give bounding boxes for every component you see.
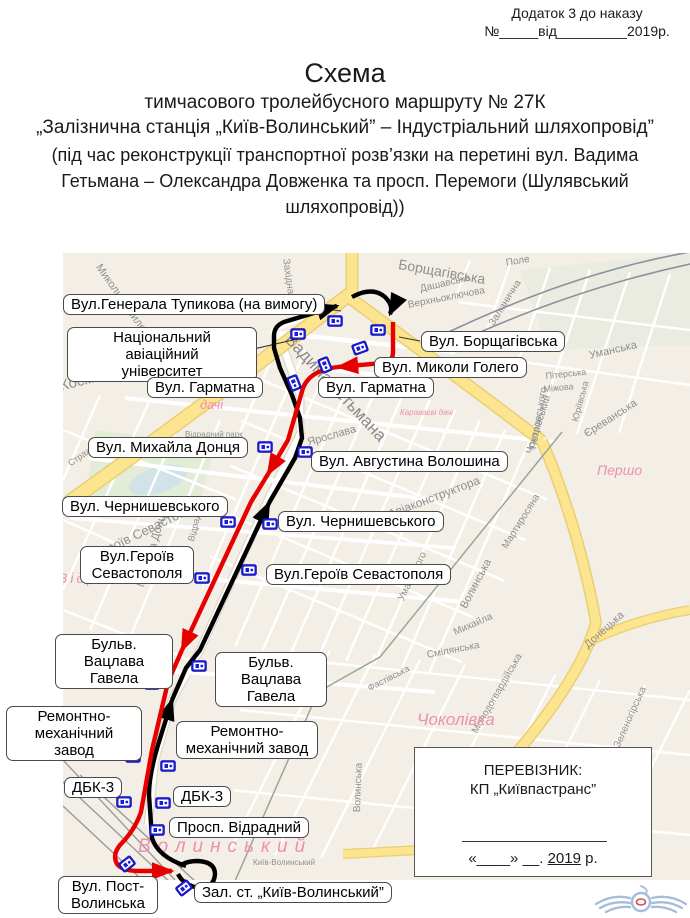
carrier-heading: ПЕРЕВІЗНИК:: [415, 761, 651, 780]
map-street-label: Волинська: [458, 557, 494, 611]
map-street-label: Смілянська: [426, 640, 481, 661]
carrier-name: КП „Київпастранс”: [415, 780, 651, 799]
map-street-label: Зеленогірська: [612, 685, 649, 749]
date-year: 2019: [548, 850, 581, 867]
map-street-label: Михайла: [452, 611, 494, 638]
map-street-label: Відра: [63, 570, 109, 586]
date-line: «____» __. 2019 р.: [415, 849, 651, 868]
map-street-label: Караваєві: [183, 383, 242, 398]
map-street-label: Миколи Василенка: [93, 262, 158, 348]
date-prefix: «____» __.: [468, 850, 547, 867]
map-street-label: Західна: [280, 258, 296, 295]
map-street-label: Караваєві дачі: [400, 408, 453, 417]
map-street-label: Уманського: [396, 550, 429, 603]
map-street-label: Донецька: [582, 609, 627, 651]
map-street-label: Авіаконструктора: [386, 473, 482, 521]
map-street-label: Волинський: [138, 836, 312, 858]
map-street-label: Відрадний парк: [185, 430, 243, 439]
map-street-label: Фастівська: [366, 663, 411, 693]
map-street-label: Єреванська: [582, 397, 639, 440]
winged-wheel-logo-icon: [592, 878, 690, 918]
map-street-label: Першо: [597, 462, 642, 478]
map-street-label: Поле: [505, 254, 530, 269]
signature-line: [462, 841, 607, 842]
map-street-label: Залізнична: [487, 278, 524, 328]
map-street-label: Уманська: [588, 339, 638, 362]
map-street-label: Мартиросяна: [500, 492, 542, 551]
map-street-label: Чоколівка: [417, 710, 495, 730]
date-suffix: р.: [581, 850, 598, 867]
page: Додаток 3 до наказу №_____від_________20…: [0, 0, 690, 918]
map-street-label: Стражеска: [66, 434, 109, 468]
map-street-label: Ярослава: [306, 423, 357, 448]
carrier-box: ПЕРЕВІЗНИК: КП „Київпастранс” «____» __.…: [414, 747, 652, 877]
map-street-label: Волинська: [352, 763, 365, 813]
map-street-label: дачі: [200, 397, 223, 412]
map-street-label: Київ-Волинський: [253, 858, 315, 867]
